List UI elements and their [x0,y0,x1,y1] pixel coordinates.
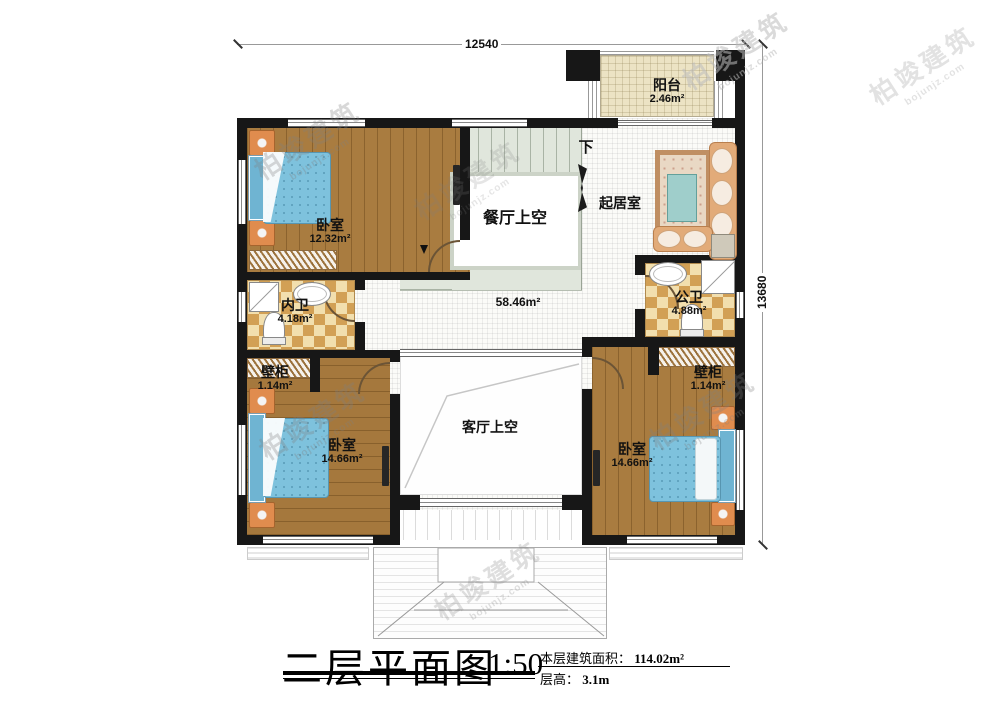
lower-terrace-strip [403,510,582,540]
room-name: 公卫 [672,290,707,305]
title-underline-thick [283,671,535,675]
watermark-site: bojunjz.com [873,42,996,127]
bedroom-1-wardrobe [249,250,337,270]
tv [382,446,389,486]
floor-height-label: 层高： [540,672,579,687]
sink [649,262,687,286]
tv [453,165,460,205]
wall [310,358,320,392]
wall [237,350,400,358]
room-area: 4.88m² [672,305,707,317]
window [263,536,373,544]
balcony-railing-left [588,78,598,118]
nightstand [711,406,735,430]
room-label-balcony: 阳台 2.46m² [650,78,685,105]
stair-treads-top [452,128,582,174]
room-label-dining-void: 餐厅上空 [483,210,547,228]
floor-height-line: 层高： 3.1m [540,669,609,688]
room-area: 1.14m² [691,380,726,392]
wall [237,272,365,280]
shower-tray [701,260,735,294]
wall [712,118,735,128]
room-name: 餐厅上空 [483,210,547,228]
side-table [711,234,735,258]
room-label-bedroom-1: 卧室 12.32m² [310,218,351,245]
room-name: 内卫 [278,298,313,313]
room-name: 卧室 [310,218,351,233]
stairs-direction: 下 [578,140,593,157]
sofa-cushion [711,148,733,174]
wall [635,255,645,275]
window [238,425,246,495]
room-area: 12.32m² [310,233,351,245]
room-area: 14.66m² [322,453,363,465]
room-area: 58.46m² [496,296,541,309]
room-label-living-void: 客厅上空 [462,420,518,435]
room-name: 阳台 [650,78,685,93]
void-top-window-band [400,349,582,357]
nightstand [711,502,735,526]
window [736,292,744,318]
title-underline-thin [283,678,535,679]
wall [648,347,659,375]
drawing-scale: 1:50 [488,646,543,682]
void-pier-left [400,495,420,510]
stair-landing-line [400,290,582,291]
window [627,536,717,544]
balcony-pillar-left [566,50,600,81]
eave-strip-left [247,547,369,560]
wall [365,272,470,280]
floor-area-line: 本层建筑面积： 114.02m² [540,648,684,667]
void-pier-right [562,495,582,510]
void-bottom-window-band [420,498,562,507]
bed-pillows [695,438,717,500]
window [288,119,365,127]
watermark: 柏竣建筑 bojunjz.com [853,11,997,128]
room-name: 卧室 [612,442,653,457]
window [452,119,527,127]
room-area: 2.46m² [650,93,685,105]
dimension-width: 12540 [462,37,501,51]
floor-height-value: 3.1m [582,672,609,687]
floor-area-label: 本层建筑面积： [540,651,631,666]
dimension-tick [758,39,768,49]
hall-area-label: 58.46m² [496,296,541,309]
window [238,292,246,322]
wall [570,118,618,128]
watermark-brand: 柏竣建筑 [853,11,991,118]
dimension-height: 13680 [755,273,769,312]
balcony-pillar-right [716,50,745,81]
porch-roof-lines [374,548,608,640]
room-name: 卧室 [322,438,363,453]
porch-roof [373,547,607,639]
shower-tray [249,282,279,312]
room-label-bedroom-3: 卧室 14.66m² [612,442,653,469]
sofa-cushion [657,230,681,248]
wall [635,309,645,345]
room-area: 4.18m² [278,313,313,325]
sofa-cushion [683,230,707,248]
bed-headboard [719,430,735,502]
dimension-tick [758,540,768,550]
balcony-railing-top [600,50,714,55]
room-label-public-bath: 公卫 4.88m² [672,290,707,317]
wall [582,389,592,545]
wall [390,350,400,362]
stairs-down-label: 下 [578,140,593,157]
floor-area-value: 114.02m² [634,651,684,666]
room-area: 1.14m² [258,380,293,392]
coffee-table [667,174,697,222]
nightstand [249,502,275,528]
room-label-inner-bath: 内卫 4.18m² [278,298,313,325]
balcony-railing-right [714,81,724,118]
room-name: 客厅上空 [462,420,518,435]
floor-plan-page: { "dimensions": { "width_label": "12540"… [0,0,1000,706]
wall [390,394,400,545]
window [238,160,246,224]
wall [582,337,735,347]
plan-canvas: 阳台 2.46m² 卧室 12.32m² 内卫 4.18m² 壁柜 1.14m²… [237,50,745,545]
room-area: 14.66m² [612,457,653,469]
sofa-cushion [711,180,733,206]
room-label-closet-left: 壁柜 1.14m² [258,365,293,392]
wall [355,272,365,290]
room-name: 壁柜 [691,365,726,380]
room-label-bedroom-2: 卧室 14.66m² [322,438,363,465]
window [736,430,744,510]
tv [593,450,600,486]
room-name: 壁柜 [258,365,293,380]
drawing-title: 二层平面图 [282,636,497,694]
room-name: 起居室 [599,196,641,211]
eave-strip-right [609,547,743,560]
room-label-living: 起居室 [599,196,641,211]
room-label-closet-right: 壁柜 1.14m² [691,365,726,392]
wall [460,118,470,240]
info-divider [538,666,730,667]
stair-direction-arrow [420,245,428,254]
balcony-sliding-door [618,120,712,126]
